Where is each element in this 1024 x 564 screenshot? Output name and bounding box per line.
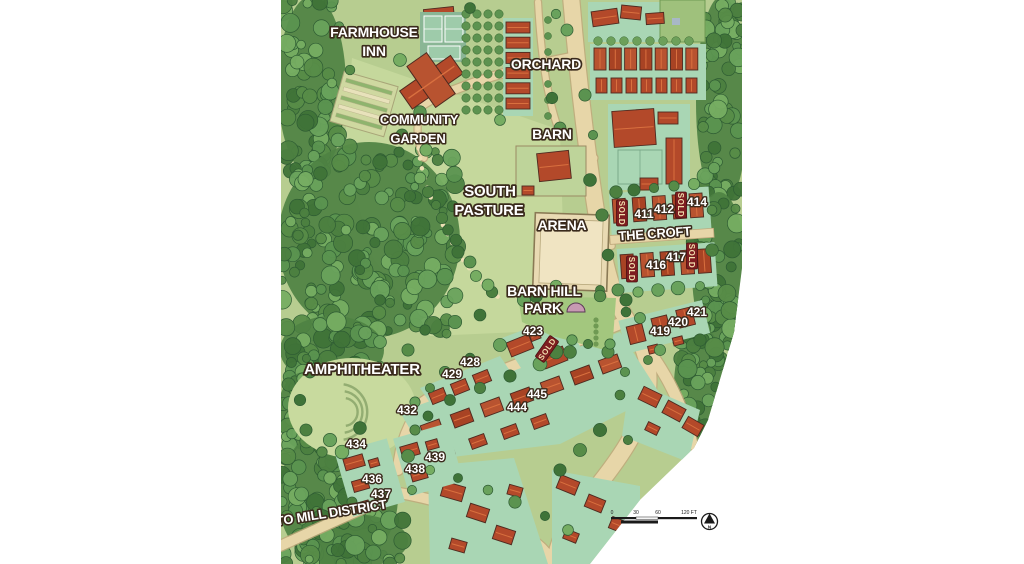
lot-label-437: 437: [371, 487, 391, 501]
lot-label-432: 432: [397, 403, 417, 417]
region-label-amphitheater: AMPHITHEATER: [304, 361, 420, 378]
lot-label-414: 414: [687, 195, 707, 209]
lot-label-421: 421: [687, 305, 707, 319]
lot-label-429: 429: [442, 367, 462, 381]
lot-label-436: 436: [362, 472, 382, 486]
scale-tick-0: 0: [611, 510, 614, 516]
scale-tick-30: 30: [633, 510, 639, 516]
region-label-arena: ARENA: [538, 217, 587, 233]
lot-label-416: 416: [646, 258, 666, 272]
sold-badge-0: SOLD: [617, 200, 628, 226]
lot-label-420: 420: [668, 315, 688, 329]
region-label-pasture: PASTURE: [454, 202, 523, 219]
lot-label-411: 411: [634, 207, 654, 221]
compass-north-label: N: [708, 525, 711, 530]
sold-badge-3: SOLD: [687, 243, 698, 269]
lot-label-412: 412: [654, 202, 674, 216]
lot-label-439: 439: [425, 450, 445, 464]
sold-badge-1: SOLD: [676, 192, 687, 218]
lot-label-438: 438: [405, 462, 425, 476]
sold-badge-2: SOLD: [627, 256, 638, 282]
neighborhood-site-plan-map: FARMHOUSEINNORCHARDCOMMUNITYGARDENBARNSO…: [0, 0, 1024, 564]
region-label-garden: GARDEN: [390, 131, 445, 146]
sold-badge-text: SOLD: [627, 257, 636, 282]
region-label-park: PARK: [524, 300, 562, 316]
map-illustration: FARMHOUSEINNORCHARDCOMMUNITYGARDENBARNSO…: [273, 0, 751, 564]
scale-tick-60: 60: [655, 510, 661, 516]
region-label-barn: BARN: [532, 126, 572, 142]
region-label-barn-hill: BARN HILL: [507, 283, 581, 299]
sold-badge-text: SOLD: [687, 244, 696, 269]
sold-badge-text: SOLD: [676, 193, 685, 218]
region-label-inn: INN: [362, 43, 386, 59]
sold-badge-text: SOLD: [617, 201, 626, 226]
lot-label-423: 423: [523, 324, 543, 338]
site-plan-page: FARMHOUSEINNORCHARDCOMMUNITYGARDENBARNSO…: [0, 0, 1024, 564]
region-label-orchard: ORCHARD: [511, 56, 581, 72]
region-label-south: SOUTH: [464, 183, 516, 200]
lot-label-428: 428: [460, 355, 480, 369]
region-label-farmhouse: FARMHOUSE: [330, 24, 418, 40]
region-label-community: COMMUNITY: [380, 112, 459, 127]
lot-label-434: 434: [346, 437, 366, 451]
lot-label-417: 417: [666, 250, 686, 264]
north-compass: N: [702, 514, 718, 530]
scale-tick-120-ft: 120 FT: [681, 510, 697, 516]
lot-label-444: 444: [507, 400, 527, 414]
lot-label-445: 445: [527, 387, 547, 401]
